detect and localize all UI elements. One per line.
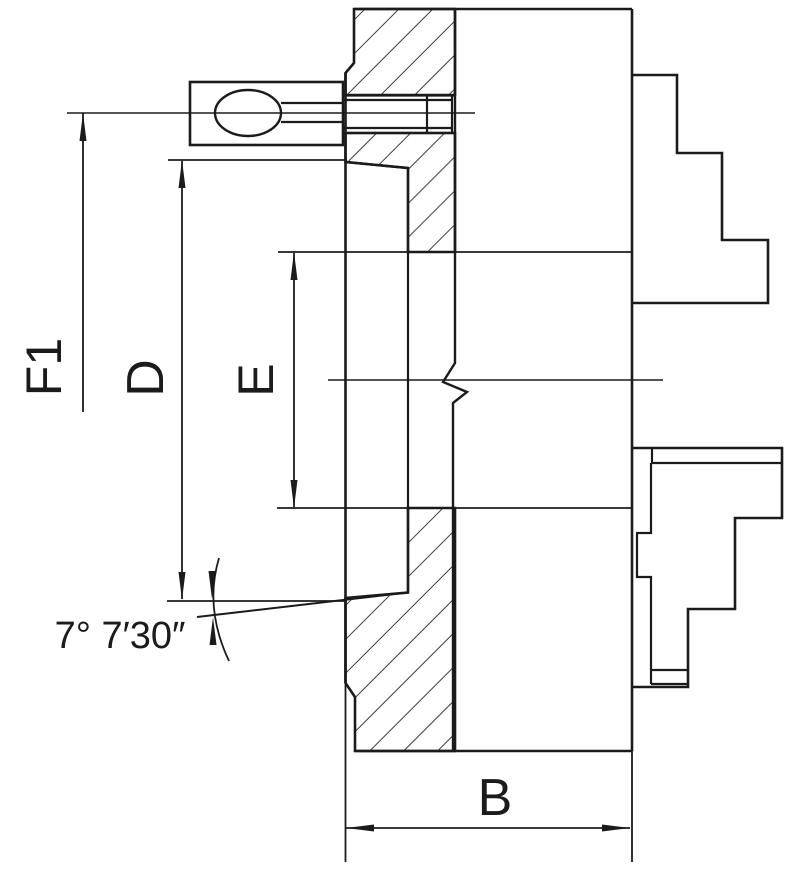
f1-arrowhead [80, 113, 87, 141]
dimension-label-e: E [228, 363, 284, 396]
flange-section-top [346, 9, 456, 95]
e-arrowhead-top [291, 252, 298, 280]
jaw-bottom-slot-edge [637, 463, 651, 684]
angle-arc [213, 558, 229, 661]
dimension-label-f1: F1 [16, 338, 72, 396]
dimension-label-d: D [117, 359, 175, 397]
d-arrowhead-top [179, 160, 186, 188]
jaw-bottom-profile [632, 448, 782, 687]
flange-section-bottom [346, 508, 456, 751]
dimension-f1: F1 [16, 113, 87, 412]
taper-angle-label: 7° 7′30″ [55, 615, 186, 657]
taper-angle-dimension: 7° 7′30″ [55, 558, 229, 661]
chuck-section-drawing: F1 D E B 7° 7′30″ [0, 0, 800, 870]
b-arrowhead-right [602, 825, 630, 832]
technical-drawing: F1 D E B 7° 7′30″ [0, 0, 800, 870]
jaw-top-profile [632, 75, 768, 303]
d-arrowhead-bottom [179, 572, 186, 600]
dimension-label-b: B [478, 769, 513, 827]
jaw-bottom [632, 448, 782, 687]
dimension-e: E [228, 252, 298, 508]
e-arrowhead-bottom [291, 480, 298, 508]
flange-section-mid-top [346, 133, 456, 252]
b-arrowhead-left [346, 825, 374, 832]
